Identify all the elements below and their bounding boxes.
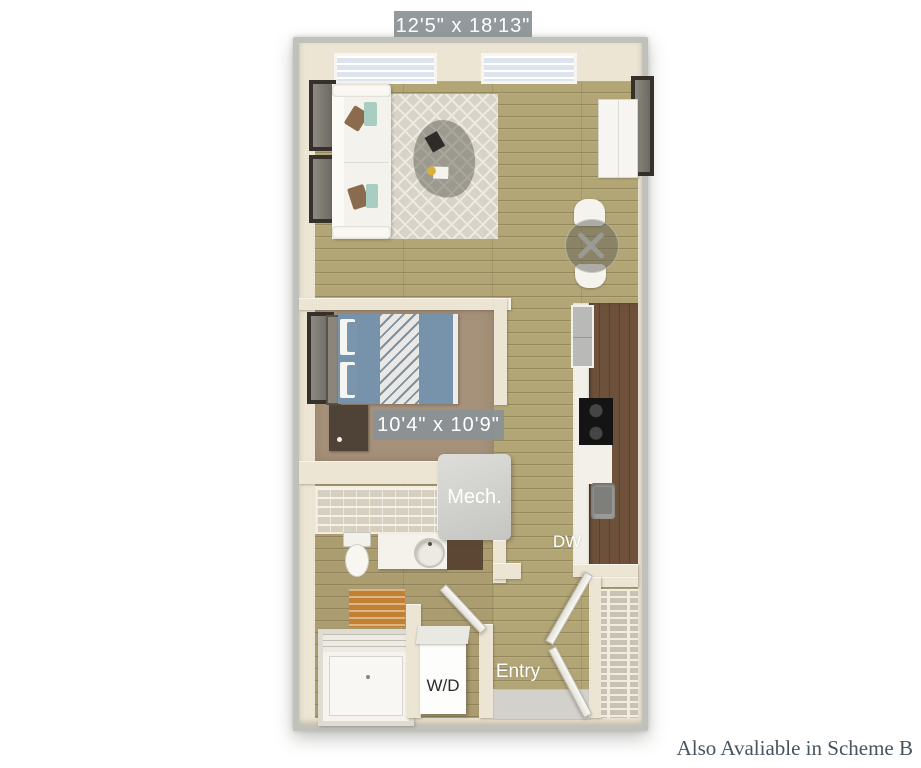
interior-walls: 10'4" x 10'9" Mech.: [299, 43, 642, 725]
bath-mat: [349, 589, 405, 627]
tablet-on-table: [425, 131, 446, 153]
bed-chevron-duvet: [380, 314, 419, 404]
washer-dryer-top: [416, 626, 471, 644]
console-divider: [618, 100, 619, 177]
dishwasher-label: DW: [547, 532, 587, 552]
throw-pillow-teal-bottom: [366, 184, 378, 208]
sofa-armrest-bottom: [332, 226, 391, 239]
floorplan-outline: 10'4" x 10'9" Mech.: [293, 37, 648, 731]
dining-table: [565, 219, 619, 273]
bed-pillow-blue-top: [347, 322, 357, 352]
bed-sheet-edge: [453, 314, 458, 404]
shower: [318, 629, 414, 726]
kitchen-counter-white: [580, 445, 612, 484]
window-top-left: [334, 53, 437, 84]
sofa-back: [332, 84, 344, 239]
shower-drain: [366, 675, 370, 679]
kitchen-sink: [591, 483, 615, 519]
shower-basin: [329, 656, 403, 716]
bathroom-closet-shelving: [315, 486, 441, 534]
room-dimensions-badge: 10'4" x 10'9": [373, 410, 504, 440]
bathroom-wall-top: [299, 461, 441, 484]
entry-label: Entry: [487, 661, 549, 683]
bathroom-vanity: [378, 534, 447, 569]
washer-dryer-label: W/D: [420, 676, 466, 696]
refrigerator: [571, 305, 594, 368]
washer-dryer: W/D: [420, 638, 466, 714]
window-top-right: [481, 53, 577, 84]
refrigerator-door-line: [573, 337, 592, 338]
nightstand: [329, 405, 368, 451]
hall-wall-stub: [493, 563, 521, 579]
mech-label: Mech.: [447, 486, 501, 509]
laundry-wall-left: [406, 604, 421, 718]
shower-rim: [323, 634, 409, 652]
sink-faucet: [428, 542, 432, 546]
entry-closet-wall-left: [589, 577, 601, 718]
throw-pillow-teal-top: [364, 102, 377, 126]
bedroom-wall-right: [494, 298, 507, 405]
sofa-cushion-line: [344, 162, 388, 163]
bedroom-wall-top: [299, 298, 499, 310]
mechanical-room: Mech.: [438, 454, 511, 540]
stove: [579, 398, 613, 445]
bed-pillow-blue-bottom: [347, 365, 357, 395]
floorplan-image: 12'5" x 18'13": [0, 0, 921, 768]
bed: [338, 314, 458, 404]
sofa: [332, 84, 391, 239]
entry-closet-shelving: [601, 589, 638, 718]
toilet: [345, 544, 369, 577]
kitchen-sink-basin: [594, 487, 612, 514]
bathroom-sink: [414, 538, 445, 568]
scheme-availability-note: Also Avaliable in Scheme B: [677, 736, 913, 761]
media-console: [598, 99, 638, 178]
nightstand-item: [337, 437, 342, 442]
sofa-armrest-top: [332, 84, 391, 97]
